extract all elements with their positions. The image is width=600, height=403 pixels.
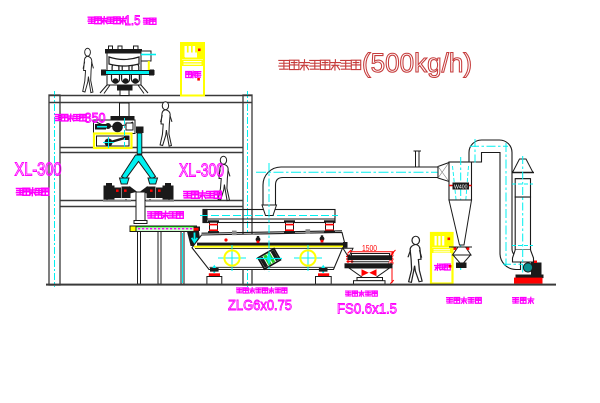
svg-text:ZLG6x0.75: ZLG6x0.75 (228, 298, 292, 314)
svg-text:XL-300: XL-300 (179, 161, 224, 181)
svg-text:XL-300: XL-300 (15, 160, 62, 180)
svg-text:1.5: 1.5 (125, 12, 141, 28)
svg-text:350: 350 (85, 110, 106, 125)
svg-text:W400: W400 (454, 185, 468, 191)
svg-text:(500kg/h): (500kg/h) (362, 48, 472, 78)
svg-text:1500: 1500 (362, 244, 377, 253)
svg-text:FS0.6x1.5: FS0.6x1.5 (337, 301, 397, 318)
